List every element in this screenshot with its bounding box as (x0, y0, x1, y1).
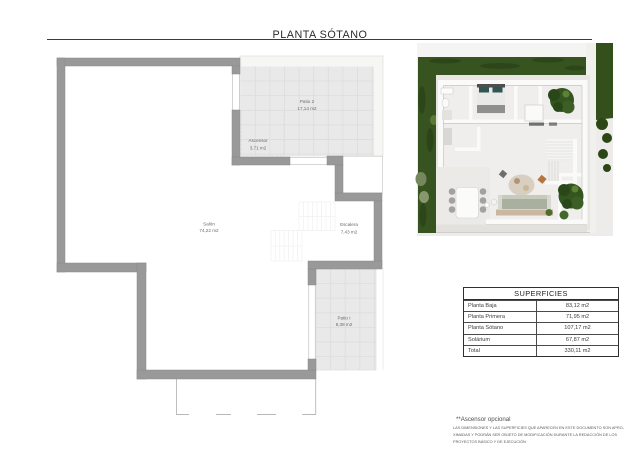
svg-text:Ascensor: Ascensor (248, 138, 268, 143)
svg-text:8,38 m2: 8,38 m2 (336, 322, 353, 327)
svg-text:Patio 2: Patio 2 (300, 99, 315, 104)
svg-text:3,71 m2: 3,71 m2 (250, 146, 267, 151)
svg-text:17,14 m2: 17,14 m2 (297, 106, 317, 111)
svg-text:Salón: Salón (203, 222, 215, 227)
svg-text:Patio I: Patio I (337, 316, 350, 321)
svg-text:Escalera: Escalera (340, 222, 358, 227)
svg-text:74,22 m2: 74,22 m2 (199, 228, 219, 233)
svg-text:7,43 m2: 7,43 m2 (341, 230, 358, 235)
